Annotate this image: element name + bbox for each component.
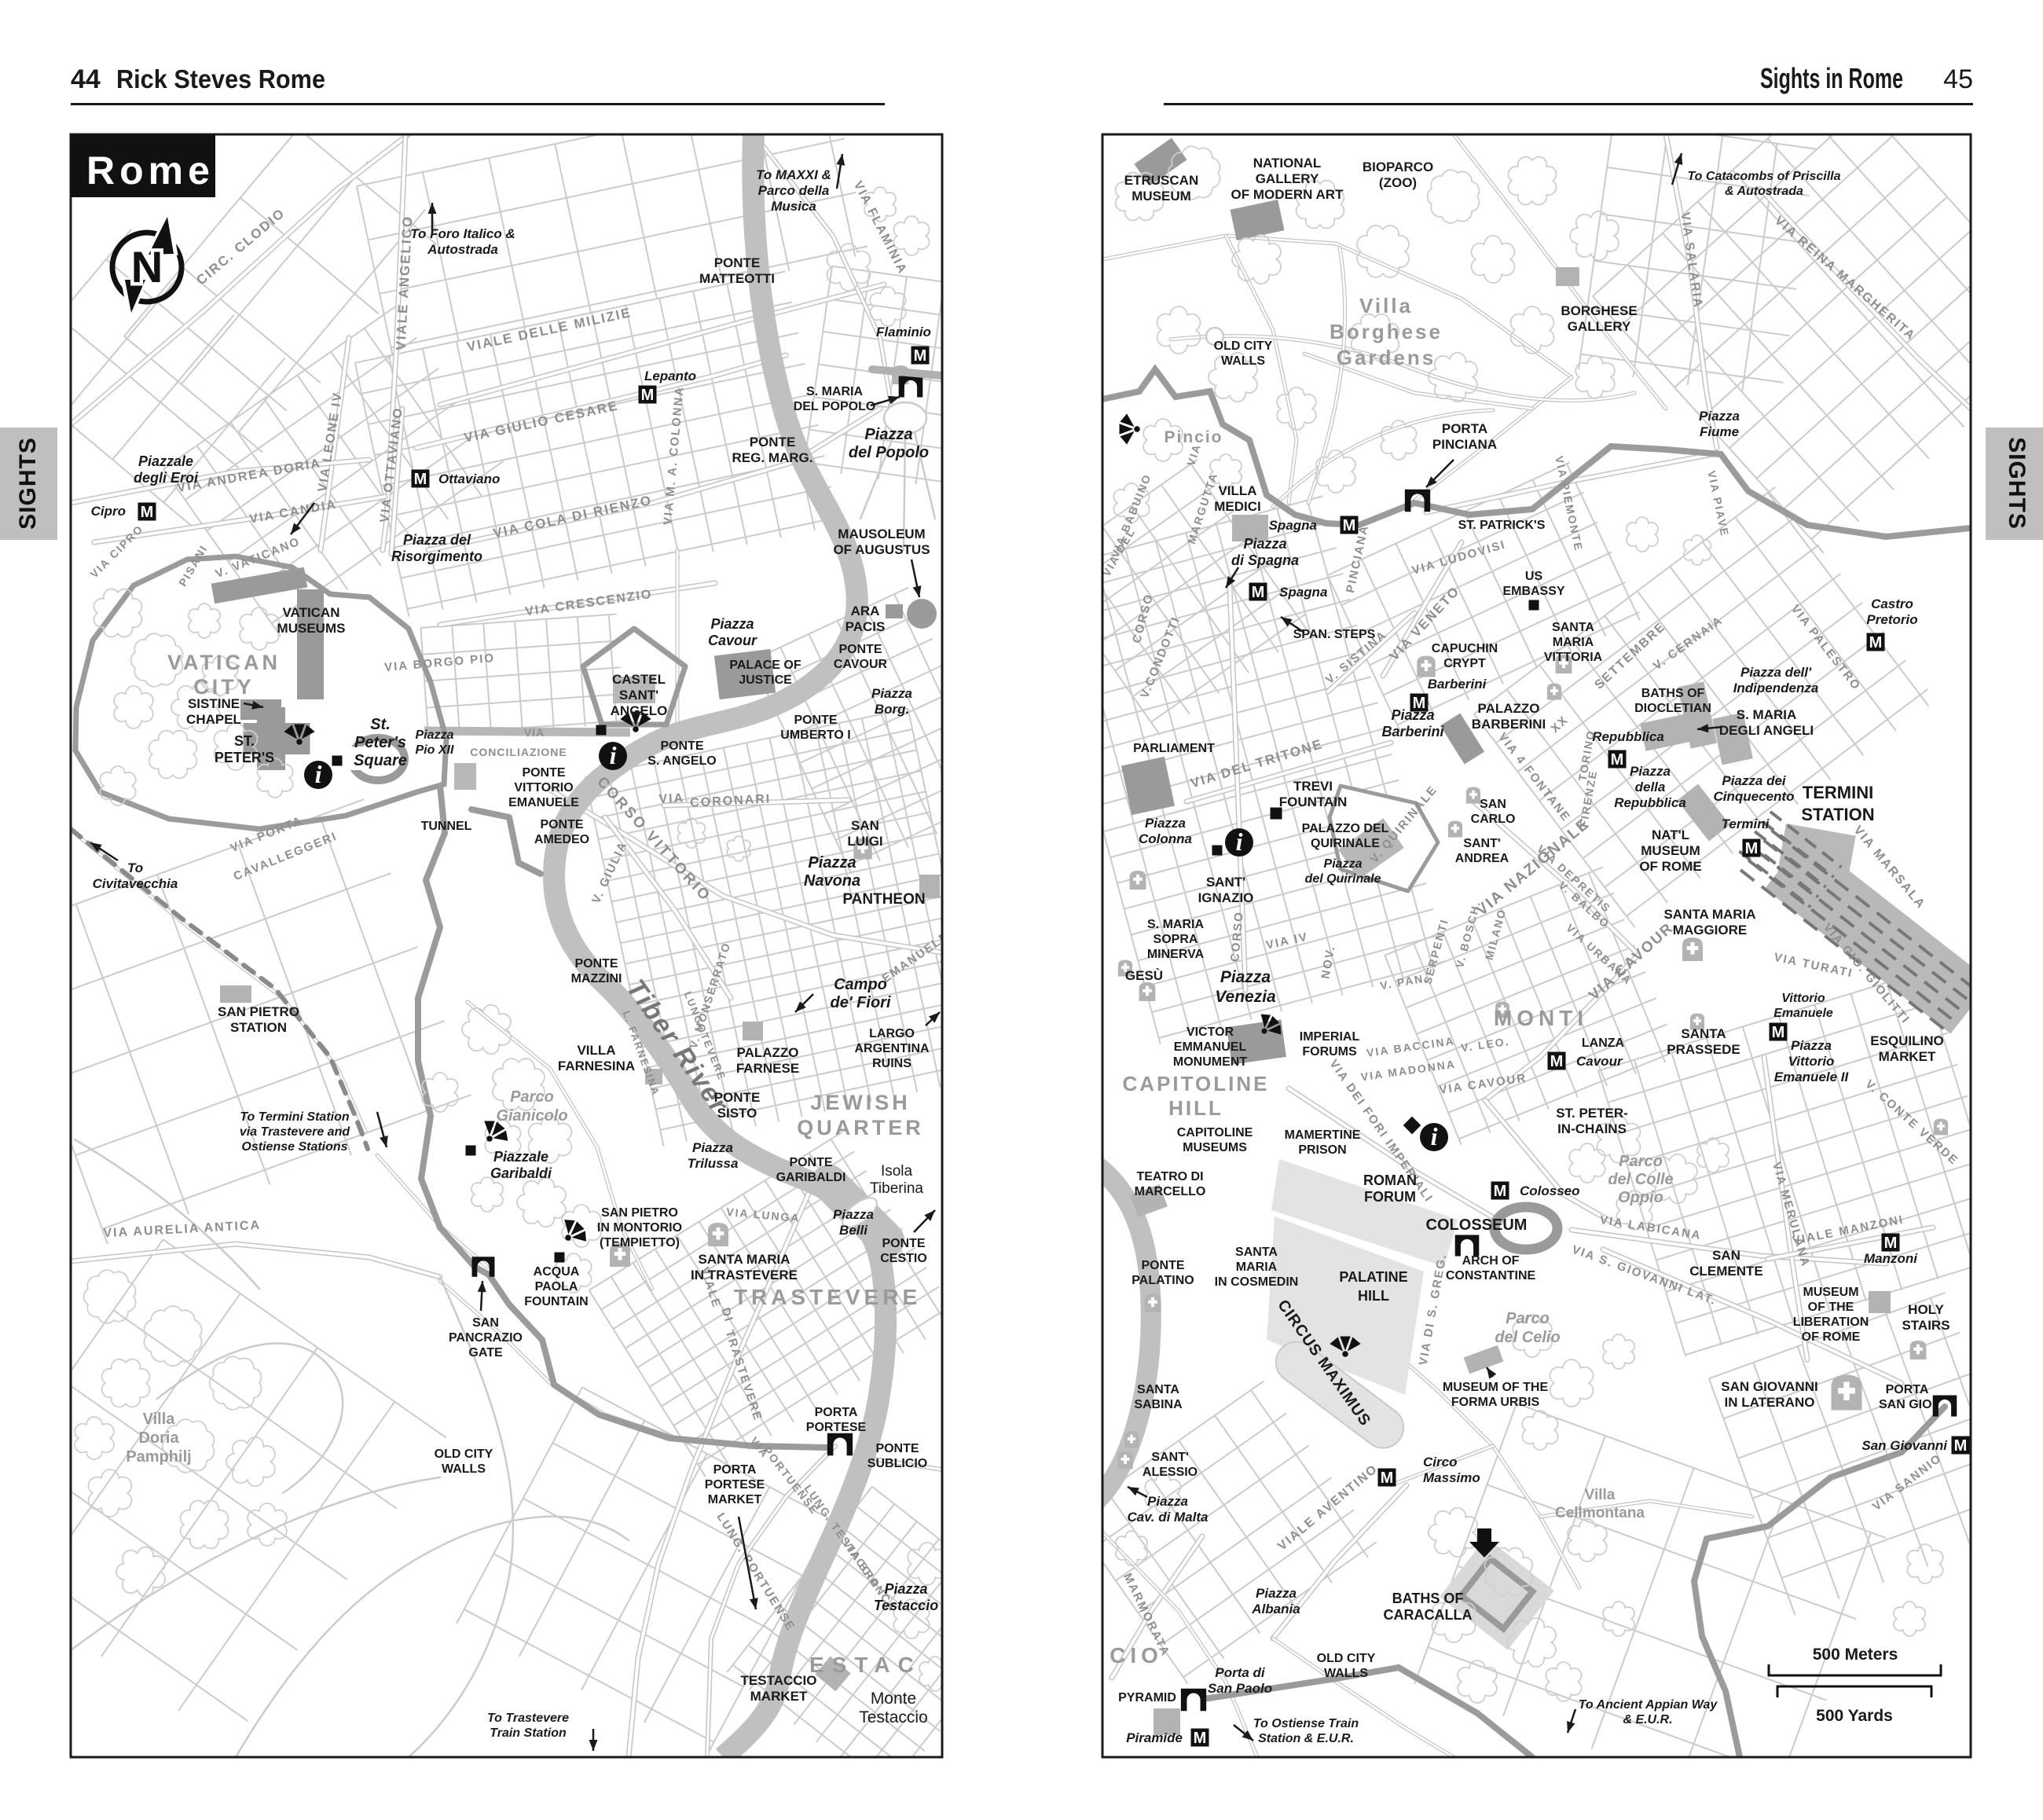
svg-text:Piazza: Piazza <box>871 686 912 701</box>
svg-text:OLD CITY: OLD CITY <box>1317 1652 1376 1665</box>
svg-text:Piazza: Piazza <box>692 1140 733 1155</box>
svg-text:WALLS: WALLS <box>1221 354 1265 368</box>
svg-text:ST. PATRICK'S: ST. PATRICK'S <box>1458 519 1546 532</box>
svg-text:HILL: HILL <box>1358 1288 1389 1304</box>
svg-text:PACIS: PACIS <box>845 619 886 634</box>
svg-text:Piazza: Piazza <box>1256 1586 1297 1601</box>
svg-text:OF ROME: OF ROME <box>1639 859 1701 874</box>
svg-text:Cellmontana: Cellmontana <box>1555 1505 1645 1521</box>
svg-text:Doria: Doria <box>138 1429 179 1447</box>
svg-text:FORUM: FORUM <box>1364 1189 1416 1205</box>
svg-text:Parco: Parco <box>1506 1310 1550 1327</box>
svg-text:To: To <box>127 860 143 875</box>
svg-text:Massimo: Massimo <box>1423 1470 1480 1485</box>
svg-text:M: M <box>1194 1730 1207 1747</box>
svg-text:Repubblica: Repubblica <box>1614 795 1686 810</box>
svg-text:NATIONAL: NATIONAL <box>1253 156 1322 171</box>
svg-text:SANTA: SANTA <box>1552 621 1594 634</box>
svg-text:Spagna: Spagna <box>1269 518 1317 533</box>
svg-text:OF MODERN ART: OF MODERN ART <box>1231 187 1344 202</box>
svg-text:ARA: ARA <box>851 604 880 618</box>
svg-text:M: M <box>1252 584 1265 601</box>
svg-text:Villa: Villa <box>1359 294 1413 317</box>
svg-text:PONTE: PONTE <box>1141 1259 1184 1272</box>
svg-text:CRYPT: CRYPT <box>1443 657 1486 670</box>
svg-text:Borghese: Borghese <box>1330 320 1443 343</box>
svg-text:ALESSIO: ALESSIO <box>1143 1466 1198 1479</box>
svg-text:Cipro: Cipro <box>91 504 126 519</box>
svg-text:SANT': SANT' <box>619 688 658 703</box>
svg-text:Station & E.U.R.: Station & E.U.R. <box>1258 1732 1354 1745</box>
svg-text:de' Fiori: de' Fiori <box>831 994 891 1011</box>
svg-text:PETER'S: PETER'S <box>215 750 274 765</box>
svg-text:Navona: Navona <box>804 872 860 890</box>
svg-text:SISTINE: SISTINE <box>188 696 240 711</box>
svg-text:(TEMPIETTO): (TEMPIETTO) <box>600 1236 680 1249</box>
svg-text:i: i <box>1431 1122 1438 1150</box>
svg-text:Gardens: Gardens <box>1337 346 1436 369</box>
svg-text:VATICAN: VATICAN <box>167 651 281 674</box>
svg-text:Colonna: Colonna <box>1139 831 1192 846</box>
svg-text:(ZOO): (ZOO) <box>1379 175 1417 190</box>
svg-text:Belli: Belli <box>839 1223 868 1238</box>
svg-text:PALATINE: PALATINE <box>1339 1269 1407 1285</box>
svg-text:Castro: Castro <box>1871 596 1913 611</box>
svg-text:FORUMS: FORUMS <box>1302 1045 1357 1059</box>
svg-text:Pretorio: Pretorio <box>1866 612 1917 627</box>
svg-text:M: M <box>1550 1053 1564 1070</box>
svg-text:SAN: SAN <box>851 818 879 833</box>
svg-text:To MAXXI &: To MAXXI & <box>756 167 831 182</box>
svg-text:IN MONTORIO: IN MONTORIO <box>597 1221 682 1235</box>
svg-text:Piazza: Piazza <box>1391 707 1434 723</box>
svg-text:Oppio: Oppio <box>1618 1189 1663 1206</box>
svg-text:PALAZZO: PALAZZO <box>1477 701 1539 716</box>
svg-text:STATION: STATION <box>230 1020 287 1035</box>
svg-text:Venezia: Venezia <box>1215 988 1276 1006</box>
svg-text:Piazzale: Piazzale <box>493 1149 548 1165</box>
svg-text:BATHS OF: BATHS OF <box>1392 1591 1464 1606</box>
svg-text:BORGHESE: BORGHESE <box>1561 303 1637 318</box>
svg-text:Manzoni: Manzoni <box>1864 1251 1918 1266</box>
svg-text:MARKET: MARKET <box>708 1493 762 1506</box>
svg-text:CESTIO: CESTIO <box>880 1252 927 1265</box>
svg-text:Villa: Villa <box>143 1411 176 1428</box>
svg-text:Ottaviano: Ottaviano <box>438 472 500 486</box>
svg-text:SIGHTS: SIGHTS <box>15 437 41 530</box>
svg-text:LARGO: LARGO <box>869 1027 915 1040</box>
svg-text:ESQUILINO: ESQUILINO <box>1870 1033 1944 1048</box>
svg-text:HILL: HILL <box>1168 1096 1223 1120</box>
svg-text:Piazza: Piazza <box>884 1581 927 1597</box>
svg-text:Barberini: Barberini <box>1428 677 1487 692</box>
svg-text:PORTESE: PORTESE <box>806 1421 867 1434</box>
svg-text:Spagna: Spagna <box>1279 585 1327 600</box>
svg-text:LIBERATION: LIBERATION <box>1793 1315 1869 1329</box>
svg-text:SANTA MARIA: SANTA MARIA <box>698 1252 790 1267</box>
svg-text:Piazza: Piazza <box>1243 536 1286 552</box>
svg-text:della: della <box>1635 780 1666 794</box>
svg-text:SANTA: SANTA <box>1235 1246 1278 1259</box>
svg-text:CARLO: CARLO <box>1471 813 1516 826</box>
svg-text:EMANUELE: EMANUELE <box>508 796 579 809</box>
svg-text:REG. MARG.: REG. MARG. <box>732 450 813 465</box>
svg-text:Garibaldi: Garibaldi <box>490 1165 552 1181</box>
svg-text:IN LATERANO: IN LATERANO <box>1725 1395 1815 1410</box>
svg-text:S. MARIA: S. MARIA <box>1737 707 1797 722</box>
svg-text:ESTAC: ESTAC <box>809 1653 922 1677</box>
svg-text:VILLA: VILLA <box>1218 483 1256 498</box>
svg-text:PRISON: PRISON <box>1298 1143 1346 1157</box>
svg-text:QUIRINALE: QUIRINALE <box>1311 837 1380 850</box>
svg-text:MUSEUMS: MUSEUMS <box>1183 1141 1247 1154</box>
svg-text:To Catacombs of Priscilla: To Catacombs of Priscilla <box>1687 170 1840 183</box>
svg-text:Repubblica: Repubblica <box>1592 729 1664 744</box>
svg-text:LUIGI: LUIGI <box>847 834 882 849</box>
svg-text:Piazza: Piazza <box>1791 1038 1832 1053</box>
svg-text:44: 44 <box>71 64 101 94</box>
svg-text:PINCIANA: PINCIANA <box>1432 437 1497 452</box>
svg-text:SAN: SAN <box>1480 798 1506 811</box>
svg-text:Vittorio: Vittorio <box>1788 1054 1835 1069</box>
svg-text:To Ancient Appian Way: To Ancient Appian Way <box>1579 1698 1718 1712</box>
svg-text:CAPITOLINE: CAPITOLINE <box>1123 1072 1270 1095</box>
svg-text:CLEMENTE: CLEMENTE <box>1689 1264 1763 1279</box>
svg-text:Vittorio: Vittorio <box>1781 992 1825 1005</box>
svg-text:PALATINO: PALATINO <box>1132 1274 1194 1287</box>
svg-text:MUSEUM: MUSEUM <box>1641 843 1700 858</box>
svg-text:MONTI: MONTI <box>1494 1006 1588 1030</box>
svg-text:Cinquecento: Cinquecento <box>1714 789 1795 804</box>
svg-text:PONTE: PONTE <box>882 1237 925 1250</box>
svg-text:MEDICI: MEDICI <box>1214 499 1261 514</box>
svg-text:FOUNTAIN: FOUNTAIN <box>1279 794 1348 809</box>
svg-text:CAVOUR: CAVOUR <box>834 658 888 671</box>
svg-text:M: M <box>1954 1437 1968 1455</box>
svg-text:M: M <box>1869 634 1883 651</box>
svg-text:To Termini Station: To Termini Station <box>240 1110 349 1124</box>
svg-text:MAMERTINE: MAMERTINE <box>1285 1128 1361 1142</box>
svg-text:SAN: SAN <box>1712 1248 1740 1263</box>
svg-text:Piazza: Piazza <box>1324 857 1363 871</box>
svg-text:OF THE: OF THE <box>1808 1301 1854 1314</box>
svg-text:PONTE: PONTE <box>794 714 837 727</box>
svg-text:QUARTER: QUARTER <box>797 1116 924 1139</box>
svg-text:S. MARIA: S. MARIA <box>806 385 863 398</box>
svg-text:TRASTEVERE: TRASTEVERE <box>734 1285 921 1309</box>
svg-text:PALACE OF: PALACE OF <box>729 659 801 672</box>
svg-text:NAT'L: NAT'L <box>1652 827 1689 842</box>
svg-text:SANTA MARIA: SANTA MARIA <box>1663 907 1755 922</box>
svg-text:ACQUA: ACQUA <box>534 1265 580 1279</box>
svg-text:SANTA: SANTA <box>1681 1026 1726 1041</box>
svg-text:i: i <box>1236 827 1243 856</box>
svg-text:SIGHTS: SIGHTS <box>2004 437 2030 530</box>
svg-text:Termini: Termini <box>1722 816 1770 831</box>
svg-text:Sights in Rome: Sights in Rome <box>1760 62 1903 94</box>
svg-text:MUSEUM: MUSEUM <box>1803 1286 1858 1299</box>
svg-text:S. MARIA: S. MARIA <box>1147 918 1204 931</box>
svg-text:MAGGIORE: MAGGIORE <box>1673 923 1747 938</box>
svg-text:JUSTICE: JUSTICE <box>739 673 792 687</box>
svg-text:Barberini: Barberini <box>1381 724 1444 739</box>
svg-text:CAPITOLINE: CAPITOLINE <box>1177 1126 1253 1139</box>
svg-text:GESÙ: GESÙ <box>1125 968 1163 983</box>
svg-text:PONTE: PONTE <box>750 435 796 449</box>
svg-text:AMEDEO: AMEDEO <box>534 833 589 846</box>
svg-text:500 Meters: 500 Meters <box>1813 1646 1898 1664</box>
svg-text:M: M <box>1884 1235 1898 1252</box>
svg-text:del Popolo: del Popolo <box>849 444 929 461</box>
svg-text:CAPUCHIN: CAPUCHIN <box>1432 642 1498 655</box>
svg-text:PONTE: PONTE <box>714 255 761 270</box>
svg-text:SANT': SANT' <box>1151 1451 1188 1464</box>
svg-text:MARCELLO: MARCELLO <box>1135 1185 1206 1198</box>
svg-text:del Quirinale: del Quirinale <box>1305 872 1381 886</box>
svg-text:STATION: STATION <box>1801 805 1874 824</box>
svg-text:PORTESE: PORTESE <box>705 1478 765 1492</box>
svg-text:SAN GIOVANNI: SAN GIOVANNI <box>1721 1379 1817 1394</box>
svg-text:Piazza: Piazza <box>416 728 454 742</box>
svg-text:Piazza: Piazza <box>833 1207 874 1222</box>
svg-text:MAUSOLEUM: MAUSOLEUM <box>838 527 925 541</box>
svg-text:& E.U.R.: & E.U.R. <box>1623 1713 1672 1726</box>
svg-text:SISTO: SISTO <box>717 1106 757 1121</box>
svg-text:Testaccio: Testaccio <box>874 1598 938 1613</box>
svg-text:45: 45 <box>1943 64 1973 94</box>
svg-text:Piazza dell': Piazza dell' <box>1740 665 1812 680</box>
svg-text:COLOSSEUM: COLOSSEUM <box>1426 1216 1528 1234</box>
svg-text:Fiume: Fiume <box>1700 424 1739 439</box>
svg-text:M: M <box>1745 840 1759 857</box>
svg-text:SANT': SANT' <box>1463 837 1500 850</box>
svg-text:Piazza: Piazza <box>1699 409 1740 424</box>
svg-text:MUSEUM OF THE: MUSEUM OF THE <box>1443 1381 1549 1394</box>
svg-text:OF AUGUSTUS: OF AUGUSTUS <box>833 542 930 557</box>
svg-text:PYRAMID: PYRAMID <box>1118 1691 1176 1704</box>
svg-text:EMBASSY: EMBASSY <box>1502 585 1564 598</box>
svg-text:CITY: CITY <box>193 675 255 699</box>
svg-text:MARIA: MARIA <box>1236 1260 1278 1274</box>
svg-text:Autostrada: Autostrada <box>427 242 498 257</box>
svg-text:WALLS: WALLS <box>442 1462 486 1476</box>
svg-text:VITTORIA: VITTORIA <box>1544 651 1603 664</box>
svg-text:PONTE: PONTE <box>714 1090 761 1105</box>
svg-text:M: M <box>141 504 154 521</box>
svg-text:SUBLICIO: SUBLICIO <box>867 1457 927 1470</box>
svg-text:Civitavecchia: Civitavecchia <box>93 876 178 891</box>
svg-text:PONTE: PONTE <box>574 957 618 971</box>
svg-text:M: M <box>1772 1024 1785 1041</box>
svg-text:To Foro Italico &: To Foro Italico & <box>410 226 515 241</box>
svg-text:Trilussa: Trilussa <box>688 1156 739 1171</box>
svg-text:Isola: Isola <box>881 1163 913 1180</box>
svg-text:FOUNTAIN: FOUNTAIN <box>524 1295 588 1308</box>
svg-text:VICTOR: VICTOR <box>1187 1026 1234 1039</box>
svg-text:M: M <box>1611 751 1624 769</box>
svg-text:TUNNEL: TUNNEL <box>421 820 472 833</box>
svg-text:Piazza: Piazza <box>1220 968 1271 986</box>
svg-text:i: i <box>610 741 617 769</box>
svg-text:Rick Steves Rome: Rick Steves Rome <box>116 64 325 94</box>
svg-text:Monte: Monte <box>871 1690 916 1708</box>
svg-text:BATHS OF: BATHS OF <box>1641 687 1705 700</box>
svg-text:PANCRAZIO: PANCRAZIO <box>449 1331 523 1345</box>
svg-text:PORTA: PORTA <box>713 1463 757 1477</box>
svg-text:GALLERY: GALLERY <box>1568 319 1631 334</box>
svg-text:Piramide: Piramide <box>1126 1730 1183 1745</box>
svg-text:GALLERY: GALLERY <box>1256 171 1319 186</box>
svg-text:RUINS: RUINS <box>872 1057 911 1070</box>
svg-text:500 Yards: 500 Yards <box>1816 1707 1893 1725</box>
svg-text:MUSEUM: MUSEUM <box>1132 189 1191 204</box>
svg-text:To Trastevere: To Trastevere <box>487 1712 569 1725</box>
svg-text:Piazzale: Piazzale <box>138 453 193 469</box>
svg-text:TREVI: TREVI <box>1293 779 1333 794</box>
svg-text:PONTE: PONTE <box>875 1442 919 1455</box>
svg-text:SAN PIETRO: SAN PIETRO <box>218 1004 299 1019</box>
svg-text:M: M <box>914 347 927 365</box>
svg-text:Circo: Circo <box>1423 1455 1457 1470</box>
svg-text:SAN PIETRO: SAN PIETRO <box>601 1206 678 1220</box>
svg-text:Colosseo: Colosseo <box>1520 1183 1580 1198</box>
svg-text:SPAN. STEPS: SPAN. STEPS <box>1293 628 1376 641</box>
svg-text:CONSTANTINE: CONSTANTINE <box>1446 1269 1536 1282</box>
svg-text:JEWISH: JEWISH <box>810 1091 911 1114</box>
svg-text:BARBERINI: BARBERINI <box>1472 717 1546 732</box>
svg-text:Piazza: Piazza <box>808 854 856 871</box>
svg-text:Testaccio: Testaccio <box>859 1708 928 1726</box>
svg-text:ROMAN: ROMAN <box>1363 1172 1417 1188</box>
svg-text:PONTE: PONTE <box>789 1156 832 1169</box>
svg-text:del Colle: del Colle <box>1608 1171 1673 1188</box>
svg-text:IN TRASTEVERE: IN TRASTEVERE <box>691 1268 798 1282</box>
svg-text:N: N <box>131 242 163 292</box>
svg-text:Campo: Campo <box>834 976 887 993</box>
svg-text:Parco: Parco <box>510 1088 554 1106</box>
svg-text:LANZA: LANZA <box>1582 1037 1625 1050</box>
svg-text:San Giovanni: San Giovanni <box>1861 1438 1948 1453</box>
svg-text:Risorgimento: Risorgimento <box>391 549 482 564</box>
svg-text:VIA: VIA <box>524 726 545 739</box>
svg-text:FARNESINA: FARNESINA <box>558 1059 635 1073</box>
svg-text:CONCILIAZIONE: CONCILIAZIONE <box>470 746 567 758</box>
svg-text:Flaminio: Flaminio <box>876 325 931 339</box>
svg-text:PALAZZO DEL: PALAZZO DEL <box>1302 822 1389 835</box>
svg-text:HOLY: HOLY <box>1908 1302 1944 1317</box>
svg-text:UMBERTO I: UMBERTO I <box>780 728 850 742</box>
svg-text:M: M <box>1381 1470 1394 1487</box>
svg-text:St.: St. <box>370 716 391 733</box>
svg-text:US: US <box>1525 570 1543 583</box>
svg-text:Piazza: Piazza <box>1630 764 1671 779</box>
svg-text:FORMA URBIS: FORMA URBIS <box>1451 1396 1540 1409</box>
svg-text:OF ROME: OF ROME <box>1802 1330 1861 1344</box>
svg-text:Emanuele: Emanuele <box>1773 1007 1833 1020</box>
svg-text:& Autostrada: & Autostrada <box>1725 185 1803 198</box>
svg-text:VIA: VIA <box>658 791 685 806</box>
svg-text:Borg.: Borg. <box>875 702 909 717</box>
svg-text:TERMINI: TERMINI <box>1803 783 1873 802</box>
svg-text:STAIRS: STAIRS <box>1902 1318 1949 1333</box>
svg-text:Tiberina: Tiberina <box>870 1180 923 1197</box>
svg-text:PARLIAMENT: PARLIAMENT <box>1133 742 1215 755</box>
svg-text:Piazza: Piazza <box>1147 1494 1188 1509</box>
svg-text:OLD CITY: OLD CITY <box>435 1448 493 1461</box>
svg-text:TEATRO DI: TEATRO DI <box>1136 1170 1203 1183</box>
svg-text:BIOPARCO: BIOPARCO <box>1363 160 1433 174</box>
svg-text:MARKET: MARKET <box>1879 1049 1936 1064</box>
svg-text:MUSEUMS: MUSEUMS <box>277 621 346 636</box>
svg-text:SOPRA: SOPRA <box>1154 933 1198 946</box>
svg-text:Lepanto: Lepanto <box>644 369 696 383</box>
svg-text:CHAPEL: CHAPEL <box>186 712 241 727</box>
svg-text:IGNAZIO: IGNAZIO <box>1198 890 1254 905</box>
svg-text:PRASSEDE: PRASSEDE <box>1667 1042 1740 1057</box>
svg-text:San Paolo: San Paolo <box>1208 1681 1272 1696</box>
svg-text:SANTA: SANTA <box>1137 1383 1179 1396</box>
svg-text:CARACALLA: CARACALLA <box>1384 1607 1473 1623</box>
svg-text:Cav. di Malta: Cav. di Malta <box>1128 1510 1209 1525</box>
svg-text:i: i <box>315 760 322 788</box>
svg-text:To Ostiense Train: To Ostiense Train <box>1253 1717 1359 1730</box>
svg-text:ST.: ST. <box>234 733 255 749</box>
svg-text:M: M <box>414 471 427 488</box>
svg-text:PONTE: PONTE <box>838 643 882 656</box>
svg-text:PONTE: PONTE <box>660 739 703 753</box>
svg-text:Parco: Parco <box>1619 1153 1663 1170</box>
svg-text:MINERVA: MINERVA <box>1147 948 1205 961</box>
svg-text:Villa: Villa <box>1585 1487 1616 1503</box>
svg-text:PONTE: PONTE <box>540 818 583 831</box>
svg-text:TESTACCIO: TESTACCIO <box>741 1673 817 1688</box>
svg-text:SABINA: SABINA <box>1134 1398 1183 1411</box>
svg-text:Musica: Musica <box>771 199 816 214</box>
svg-text:PONTE: PONTE <box>522 766 565 780</box>
svg-text:di Spagna: di Spagna <box>1231 552 1299 568</box>
svg-text:Rome: Rome <box>86 149 215 193</box>
svg-text:SAN: SAN <box>472 1316 499 1330</box>
svg-text:Piazza: Piazza <box>1145 816 1186 831</box>
svg-text:Piazza dei: Piazza dei <box>1722 773 1787 788</box>
svg-text:Albania: Albania <box>1251 1602 1300 1616</box>
svg-text:MARKET: MARKET <box>750 1689 808 1704</box>
svg-text:via Trastevere and: via Trastevere and <box>240 1125 350 1139</box>
svg-text:IN-CHAINS: IN-CHAINS <box>1557 1121 1627 1136</box>
svg-text:PALAZZO: PALAZZO <box>736 1045 798 1060</box>
svg-text:del Celio: del Celio <box>1495 1329 1560 1346</box>
svg-text:DEL POPOLO: DEL POPOLO <box>794 400 876 413</box>
svg-text:M: M <box>1494 1183 1507 1200</box>
svg-text:DEGLI ANGELI: DEGLI ANGELI <box>1719 723 1814 738</box>
svg-text:Pamphilj: Pamphilj <box>126 1448 191 1466</box>
svg-text:S. ANGELO: S. ANGELO <box>647 754 716 768</box>
svg-text:ARCH OF: ARCH OF <box>1462 1254 1520 1268</box>
svg-text:M: M <box>1343 517 1356 534</box>
svg-text:MONUMENT: MONUMENT <box>1173 1055 1247 1069</box>
svg-text:PORTA: PORTA <box>815 1406 858 1419</box>
svg-text:PANTHEON: PANTHEON <box>842 891 925 908</box>
svg-text:Ostiense Stations: Ostiense Stations <box>241 1140 347 1154</box>
svg-text:Indipendenza: Indipendenza <box>1733 681 1819 695</box>
svg-text:WALLS: WALLS <box>1324 1667 1368 1680</box>
svg-text:Piazza: Piazza <box>864 426 912 443</box>
svg-text:Cavour: Cavour <box>708 633 757 648</box>
svg-text:VITTORIO: VITTORIO <box>514 781 573 794</box>
svg-text:Pincio: Pincio <box>1164 428 1223 446</box>
svg-text:IMPERIAL: IMPERIAL <box>1300 1030 1360 1044</box>
svg-text:ETRUSCAN: ETRUSCAN <box>1124 173 1198 188</box>
